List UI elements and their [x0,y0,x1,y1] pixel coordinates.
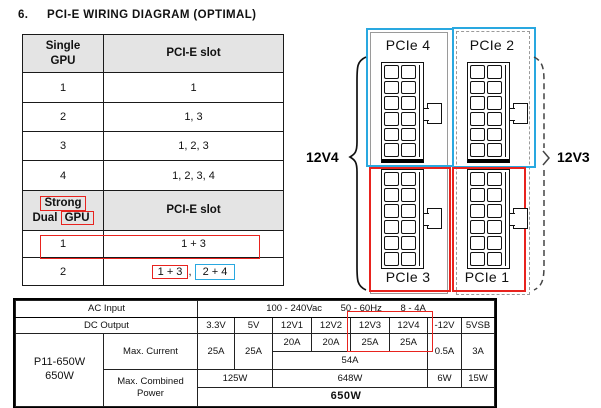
pin [384,96,399,110]
pin [470,96,485,110]
single-label: Single [46,40,81,52]
pin [401,112,416,126]
page-title: PCI-E WIRING DIAGRAM (OPTIMAL) [47,9,256,21]
gpu-count-cell: 4 [23,161,104,191]
pin [470,65,485,79]
pcie3-connector-drawing [381,169,424,269]
power-5vsb-cell: 15W [462,370,495,388]
rail-12v3-label: 12V3 [557,149,590,165]
max-current-label-cell: Max. Current [104,334,198,370]
pin [487,65,502,79]
slot-list-cell: 1, 2, 3 [104,132,284,161]
pin [384,81,399,95]
pcie-slot-header-cell: PCI-E slot [104,191,284,231]
pcie2-connector-drawing [467,62,510,163]
pin [487,204,502,218]
pcie4-connector-drawing [381,62,424,163]
rail-header-cell: -12V [428,318,462,334]
rail-header-cell: 12V3 [351,318,390,334]
section-number: 6. [18,9,28,21]
pin [487,188,502,202]
ac-voltage-range: 100 - 240Vac [266,303,322,314]
total-power-cell: 650W [198,388,495,407]
ac-input-label-cell: AC Input [16,301,198,318]
power-33v-5v-cell: 125W [198,370,273,388]
pin [401,236,416,250]
model-wattage: 650W [45,370,74,382]
rail-12v4-label: 12V4 [306,149,339,165]
dc-output-label-cell: DC Output [16,318,198,334]
pin [401,172,416,186]
power-12v-cell: 648W [273,370,428,388]
spec-table-wrapper: AC Input 100 - 240Vac 50 - 60Hz 8 - 4A D… [13,298,497,408]
strong-dual-gpu-header-cell: Strong Dual GPU [23,191,104,231]
pcie3-label: PCIe 3 [369,269,447,285]
pin [401,96,416,110]
left-brace-icon [346,54,370,294]
pin [487,96,502,110]
gpu-count-cell: 3 [23,132,104,161]
pin [384,204,399,218]
slot-list-cell: 1, 2, 3, 4 [104,161,284,191]
gpu-count-cell: 1 [23,231,104,258]
strong-highlight-box: Strong [40,196,85,211]
current-neg12v-cell: 0.5A [428,334,462,370]
rail-header-cell: 3.3V [198,318,235,334]
pin [384,143,399,157]
pin [401,143,416,157]
ac-frequency-range: 50 - 60Hz [341,303,382,314]
slot-list-cell: 1 + 3 [104,231,284,258]
model-name: P11-650W [34,356,85,368]
pin [487,128,502,142]
gpu-label: GPU [51,55,76,67]
current-12v4-cell: 25A [390,334,428,352]
pin [384,188,399,202]
rail-header-cell: 12V4 [390,318,428,334]
pin [487,220,502,234]
rail-header-cell: 5V [235,318,273,334]
pin [384,65,399,79]
ac-input-values-cell: 100 - 240Vac 50 - 60Hz 8 - 4A [198,301,495,318]
pin [401,65,416,79]
pin [401,220,416,234]
current-12v1-cell: 20A [273,334,312,352]
pin [401,204,416,218]
current-5v-cell: 25A [235,334,273,370]
pin [384,220,399,234]
rail-header-cell: 5VSB [462,318,495,334]
max-combined-label: Max. Combined [117,376,184,387]
gpu-count-cell: 2 [23,103,104,132]
pin [384,128,399,142]
current-33v-cell: 25A [198,334,235,370]
pin [470,172,485,186]
power-label: Power [137,388,164,399]
slot-separator: , [188,266,191,278]
pin [470,112,485,126]
pin [401,188,416,202]
manual-page: 6. PCI-E WIRING DIAGRAM (OPTIMAL) Single… [0,0,601,408]
pin [384,236,399,250]
model-cell: P11-650W 650W [16,334,104,407]
slot-list-cell: 1 [104,73,284,103]
pin [401,128,416,142]
pcie4-label: PCIe 4 [370,37,446,53]
pin [384,112,399,126]
gpu-highlight-box: GPU [61,211,94,226]
pin [470,128,485,142]
slot-list-cell: 1 + 3, 2 + 4 [104,258,284,286]
right-brace-dashed-icon [529,54,555,294]
pcie4-latch-tab [427,103,442,124]
pcie3-latch-tab [427,208,442,229]
current-12v3-cell: 25A [351,334,390,352]
pcie2-latch-tab [513,103,528,124]
rail-header-cell: 12V2 [312,318,351,334]
single-gpu-header-cell: Single GPU [23,35,104,73]
pcie1-label: PCIe 1 [452,269,522,285]
ac-current-range: 8 - 4A [400,303,425,314]
current-12v-combined-cell: 54A [273,352,428,370]
pcie2-label: PCIe 2 [456,37,528,53]
slot-blue-highlight: 2 + 4 [195,264,236,280]
pin [470,252,485,266]
slot-red-highlight: 1 + 3 [152,265,189,279]
power-neg12v-cell: 6W [428,370,462,388]
pin [384,252,399,266]
gpu-count-cell: 1 [23,73,104,103]
pcie1-connector-drawing [467,169,510,269]
pcie-slot-header-cell: PCI-E slot [104,35,284,73]
pin [470,81,485,95]
pin [470,188,485,202]
pin [487,81,502,95]
pcie1-latch-tab [513,208,528,229]
slot-list-cell: 1, 3 [104,103,284,132]
rail-header-cell: 12V1 [273,318,312,334]
current-5vsb-cell: 3A [462,334,495,370]
pin [487,143,502,157]
pin [487,112,502,126]
pin [487,172,502,186]
pin [470,143,485,157]
gpu-slot-table: Single GPU PCI-E slot 1 1 2 1, 3 3 1, 2,… [22,34,284,286]
pin [401,81,416,95]
gpu-count-cell: 2 [23,258,104,286]
pin [470,236,485,250]
pin [384,172,399,186]
pin [487,252,502,266]
pin [470,204,485,218]
pin [487,236,502,250]
spec-table: AC Input 100 - 240Vac 50 - 60Hz 8 - 4A D… [15,300,495,407]
dual-label: Dual [32,212,57,224]
max-combined-power-label-cell: Max. Combined Power [104,370,198,407]
pin [401,252,416,266]
pin [470,220,485,234]
current-12v2-cell: 20A [312,334,351,352]
